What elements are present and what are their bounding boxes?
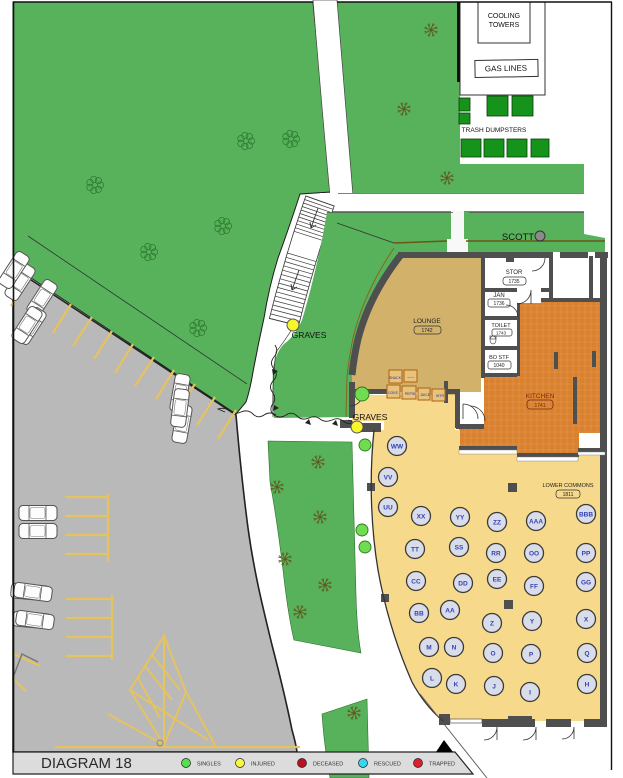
svg-text:RR: RR	[491, 550, 501, 557]
svg-text:J: J	[492, 683, 496, 690]
svg-text:1735: 1735	[508, 279, 519, 285]
svg-text:JUICE: JUICE	[420, 393, 431, 397]
svg-text:UU: UU	[383, 504, 393, 511]
svg-text:——: ——	[408, 375, 416, 379]
svg-text:ZZ: ZZ	[493, 519, 501, 526]
svg-text:PP: PP	[582, 550, 591, 557]
svg-text:1736: 1736	[493, 301, 504, 307]
svg-text:GRAVES: GRAVES	[292, 330, 327, 340]
svg-text:1742: 1742	[421, 328, 432, 334]
svg-text:PEPSI: PEPSI	[405, 392, 415, 396]
svg-text:1741: 1741	[534, 403, 545, 409]
svg-text:XX: XX	[417, 513, 426, 520]
svg-text:DD: DD	[458, 580, 468, 587]
svg-text:YY: YY	[456, 514, 465, 521]
svg-text:N: N	[452, 644, 457, 651]
svg-text:OO: OO	[529, 550, 539, 557]
svg-text:LOUNGE: LOUNGE	[413, 318, 441, 325]
svg-text:M: M	[426, 644, 431, 651]
svg-text:Q: Q	[584, 650, 589, 657]
svg-text:GAS LINES: GAS LINES	[485, 64, 527, 74]
svg-text:BBB: BBB	[579, 511, 593, 518]
svg-text:SINGLES: SINGLES	[197, 762, 221, 768]
svg-text:DIAGRAM 18: DIAGRAM 18	[41, 755, 132, 772]
svg-text:CC: CC	[411, 578, 421, 585]
svg-text:1811: 1811	[563, 492, 574, 498]
svg-text:1743: 1743	[496, 331, 507, 336]
svg-text:WW: WW	[391, 443, 404, 450]
svg-text:H: H	[585, 681, 590, 688]
svg-text:Y: Y	[530, 618, 535, 625]
svg-text:GRAVES: GRAVES	[353, 412, 388, 422]
svg-text:FF: FF	[530, 583, 538, 590]
svg-text:Z: Z	[490, 620, 494, 627]
svg-text:RESCUED: RESCUED	[374, 762, 401, 768]
svg-text:STOR: STOR	[506, 270, 523, 276]
svg-text:COKE: COKE	[388, 391, 399, 395]
svg-text:EE: EE	[493, 576, 502, 583]
svg-text:SCOTT: SCOTT	[502, 232, 534, 243]
svg-text:TRAPPED: TRAPPED	[429, 762, 455, 768]
svg-text:TT: TT	[411, 546, 419, 553]
svg-text:1040: 1040	[493, 363, 504, 369]
svg-text:GG: GG	[581, 579, 591, 586]
svg-text:INJURED: INJURED	[251, 762, 275, 768]
svg-text:O: O	[490, 650, 495, 657]
svg-text:X: X	[584, 616, 589, 623]
svg-text:AA: AA	[445, 607, 455, 614]
svg-text:I: I	[529, 689, 531, 696]
svg-text:JAN: JAN	[493, 293, 504, 299]
svg-text:AAA: AAA	[529, 518, 543, 525]
svg-text:K: K	[454, 681, 459, 688]
svg-text:SS: SS	[455, 544, 464, 551]
svg-text:P: P	[529, 651, 534, 658]
svg-text:SNACK: SNACK	[389, 376, 402, 380]
svg-text:TOWERS: TOWERS	[489, 22, 520, 29]
svg-text:TOILET: TOILET	[491, 323, 511, 329]
svg-text:BB: BB	[414, 610, 424, 617]
svg-text:COOLING: COOLING	[488, 13, 520, 20]
svg-text:VV: VV	[384, 474, 393, 481]
svg-text:L: L	[430, 675, 434, 682]
svg-text:BO STF: BO STF	[489, 355, 510, 361]
svg-text:KITCHEN: KITCHEN	[526, 393, 555, 400]
svg-text:LOWER COMMONS: LOWER COMMONS	[542, 483, 593, 489]
svg-text:TRASH DUMPSTERS: TRASH DUMPSTERS	[462, 127, 527, 134]
svg-text:DECEASED: DECEASED	[313, 762, 343, 768]
svg-text:WTR: WTR	[436, 394, 444, 398]
